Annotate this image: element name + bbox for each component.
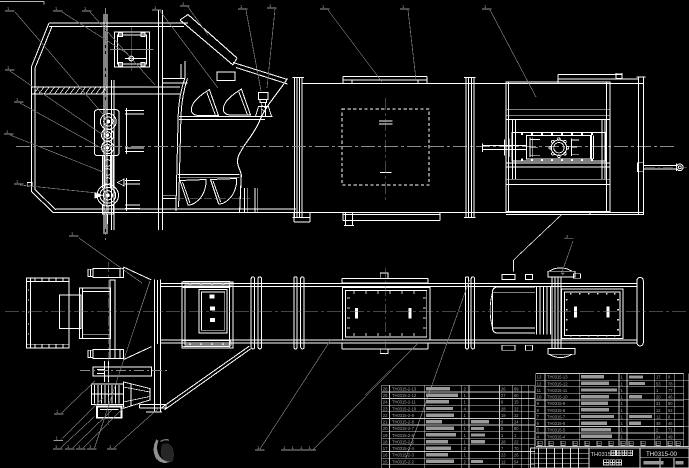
- svg-text:26: 26: [383, 387, 388, 392]
- svg-text:TH0315-4: TH0315-4: [547, 434, 566, 439]
- svg-text:17: 17: [383, 446, 388, 451]
- svg-text:TH0315-11: TH0315-11: [547, 388, 568, 393]
- svg-text:78: 78: [668, 381, 673, 386]
- svg-text:90: 90: [668, 401, 673, 406]
- svg-text:23: 23: [383, 406, 388, 411]
- svg-text:TH0315-5: TH0315-5: [547, 428, 566, 433]
- svg-text:28: 28: [501, 406, 506, 411]
- svg-text:19: 19: [501, 413, 506, 418]
- svg-text:23: 23: [501, 453, 506, 458]
- svg-text:32: 32: [514, 406, 519, 411]
- svg-text:TH0315-2-5: TH0315-2-5: [392, 439, 415, 444]
- svg-text:12: 12: [537, 381, 542, 386]
- svg-text:TH0315-12: TH0315-12: [547, 381, 568, 386]
- svg-text:20: 20: [656, 395, 661, 400]
- svg-text:24: 24: [383, 400, 388, 405]
- svg-text:16: 16: [383, 453, 388, 458]
- svg-text:70: 70: [514, 446, 519, 451]
- svg-text:TH0315-9: TH0315-9: [547, 401, 566, 406]
- svg-text:20: 20: [383, 426, 388, 431]
- svg-text:26: 26: [514, 453, 519, 458]
- svg-text:10: 10: [537, 395, 542, 400]
- svg-text:60: 60: [514, 393, 519, 398]
- svg-text:48: 48: [656, 421, 661, 426]
- svg-text:17: 17: [656, 375, 661, 380]
- svg-text:22: 22: [383, 413, 388, 418]
- svg-text:18: 18: [383, 439, 388, 444]
- svg-text:80: 80: [514, 426, 519, 431]
- svg-text:71: 71: [668, 428, 673, 433]
- svg-text:TH0315-2-3: TH0315-2-3: [392, 453, 415, 458]
- svg-text:53: 53: [656, 381, 661, 386]
- svg-text:TH0315-2-8: TH0315-2-8: [392, 420, 415, 425]
- svg-text:46: 46: [668, 395, 673, 400]
- svg-text:25: 25: [383, 393, 388, 398]
- svg-text:24: 24: [656, 434, 661, 439]
- svg-text:12: 12: [501, 459, 506, 464]
- svg-text:46: 46: [668, 421, 673, 426]
- svg-text:TH0315: TH0315: [591, 452, 612, 458]
- svg-text:TH0315-6: TH0315-6: [547, 421, 566, 426]
- svg-text:TH0315-00: TH0315-00: [646, 451, 678, 458]
- svg-text:TH0315-2-10: TH0315-2-10: [392, 406, 417, 411]
- svg-text:15: 15: [383, 459, 388, 464]
- svg-text:32: 32: [514, 413, 519, 418]
- svg-text:12: 12: [656, 414, 661, 419]
- svg-text:TH0315-2-7: TH0315-2-7: [392, 426, 415, 431]
- svg-text:TH0315-2-13: TH0315-2-13: [392, 387, 417, 392]
- svg-text:TH0315-2-11: TH0315-2-11: [392, 400, 417, 405]
- svg-text:TH0315-7: TH0315-7: [547, 414, 566, 419]
- svg-text:TH0315-2-9: TH0315-2-9: [392, 413, 415, 418]
- svg-text:TH0315-2-12: TH0315-2-12: [392, 393, 417, 398]
- svg-text:24: 24: [514, 420, 519, 425]
- svg-text:TH0315-2-4: TH0315-2-4: [392, 446, 415, 451]
- svg-text:26: 26: [501, 387, 506, 392]
- svg-text:49: 49: [668, 434, 673, 439]
- svg-text:54: 54: [514, 459, 519, 464]
- svg-text:TH0315-10: TH0315-10: [547, 395, 568, 400]
- svg-text:TH0315-2-2: TH0315-2-2: [392, 459, 415, 464]
- svg-text:22: 22: [514, 439, 519, 444]
- svg-text:12: 12: [656, 408, 661, 413]
- svg-text:15: 15: [514, 400, 519, 405]
- svg-text:62: 62: [668, 408, 673, 413]
- svg-text:19: 19: [383, 433, 388, 438]
- svg-text:21: 21: [383, 420, 388, 425]
- svg-text:TH0315-13: TH0315-13: [547, 375, 568, 380]
- svg-text:89: 89: [514, 387, 519, 392]
- svg-text:31: 31: [656, 401, 661, 406]
- svg-text:11: 11: [537, 388, 542, 393]
- svg-text:27: 27: [501, 393, 506, 398]
- svg-text:13: 13: [537, 375, 542, 380]
- svg-text:77: 77: [668, 388, 673, 393]
- svg-text:TH0315-2-6: TH0315-2-6: [392, 433, 415, 438]
- svg-text:28: 28: [501, 439, 506, 444]
- svg-text:TH0315-8: TH0315-8: [547, 408, 566, 413]
